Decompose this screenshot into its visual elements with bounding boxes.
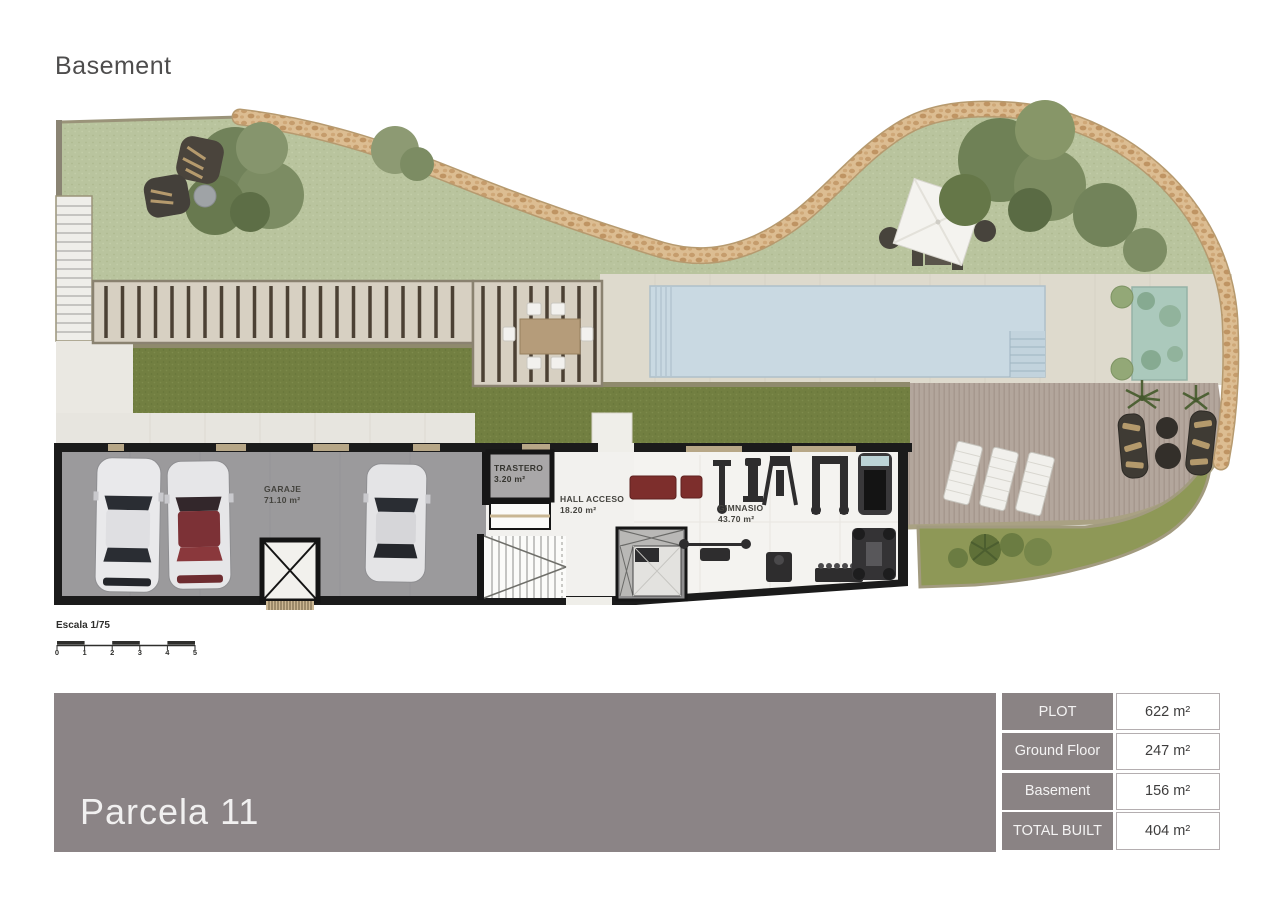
- car-icon: [92, 457, 164, 592]
- scale-tick: 1: [79, 648, 91, 657]
- summary-row-value: 404 m²: [1116, 812, 1220, 849]
- room-area: 43.70 m²: [718, 514, 763, 525]
- room-label-gimnasio: GIMNASIO 43.70 m²: [718, 503, 763, 524]
- summary-row-label: TOTAL BUILT: [1002, 812, 1113, 849]
- scale-tick: 2: [106, 648, 118, 657]
- room-label-hall: HALL ACCESO 18.20 m²: [560, 494, 624, 515]
- summary-table: PLOT 622 m² Ground Floor 247 m² Basement…: [1002, 693, 1220, 852]
- room-name: GARAJE: [264, 484, 301, 495]
- car-icon: [164, 460, 235, 589]
- room-name: TRASTERO: [494, 463, 543, 474]
- room-area: 18.20 m²: [560, 505, 624, 516]
- parcel-name: Parcela 11: [80, 791, 259, 833]
- dining-pergola: [473, 281, 602, 386]
- scale-tick: 4: [161, 648, 173, 657]
- treadmill-icon: [858, 453, 892, 515]
- summary-row-label: Ground Floor: [1002, 733, 1113, 770]
- scale-tick: 0: [51, 648, 63, 657]
- swimming-pool: [650, 286, 1045, 377]
- car-icon: [362, 463, 431, 582]
- staircase: [484, 536, 566, 598]
- room-name: GIMNASIO: [718, 503, 763, 514]
- room-area: 71.10 m²: [264, 495, 301, 506]
- deck-sofas: [1117, 410, 1217, 479]
- scale-label: Escala 1/75: [56, 620, 110, 631]
- summary-row-value: 156 m²: [1116, 773, 1220, 810]
- parcel-banner: Parcela 11: [54, 693, 996, 852]
- shaft: [262, 540, 318, 610]
- elevator: [617, 528, 686, 600]
- room-label-garaje: GARAJE 71.10 m²: [264, 484, 301, 505]
- scale-tick: 3: [134, 648, 146, 657]
- room-area: 3.20 m²: [494, 474, 543, 485]
- scale-tick: 5: [189, 648, 201, 657]
- room-name: HALL ACCESO: [560, 494, 624, 505]
- room-label-trastero: TRASTERO 3.20 m²: [494, 463, 543, 484]
- summary-row-value: 247 m²: [1116, 733, 1220, 770]
- summary-row-label: PLOT: [1002, 693, 1113, 730]
- summary-row-label: Basement: [1002, 773, 1113, 810]
- pergola: [93, 281, 473, 343]
- summary-row-value: 622 m²: [1116, 693, 1220, 730]
